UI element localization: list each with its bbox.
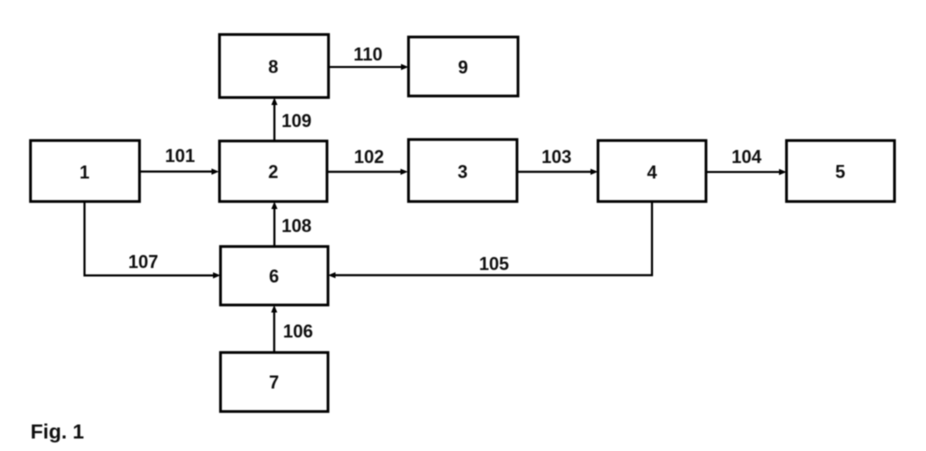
svg-text:103: 103	[541, 147, 571, 167]
svg-text:107: 107	[128, 252, 158, 272]
svg-text:104: 104	[731, 147, 761, 167]
svg-text:109: 109	[282, 111, 312, 131]
svg-text:3: 3	[458, 162, 468, 182]
svg-text:6: 6	[269, 267, 279, 287]
svg-text:2: 2	[268, 162, 278, 182]
svg-text:105: 105	[479, 254, 509, 274]
svg-text:5: 5	[835, 162, 845, 182]
svg-text:108: 108	[282, 216, 312, 236]
svg-text:102: 102	[354, 147, 384, 167]
svg-text:1: 1	[79, 163, 89, 183]
svg-text:7: 7	[269, 373, 279, 393]
svg-text:101: 101	[165, 146, 195, 166]
svg-text:4: 4	[647, 162, 657, 182]
svg-text:106: 106	[283, 322, 313, 342]
svg-text:110: 110	[353, 45, 382, 65]
svg-text:Fig. 1: Fig. 1	[31, 421, 85, 444]
svg-text:9: 9	[458, 57, 468, 77]
svg-text:8: 8	[268, 57, 278, 77]
